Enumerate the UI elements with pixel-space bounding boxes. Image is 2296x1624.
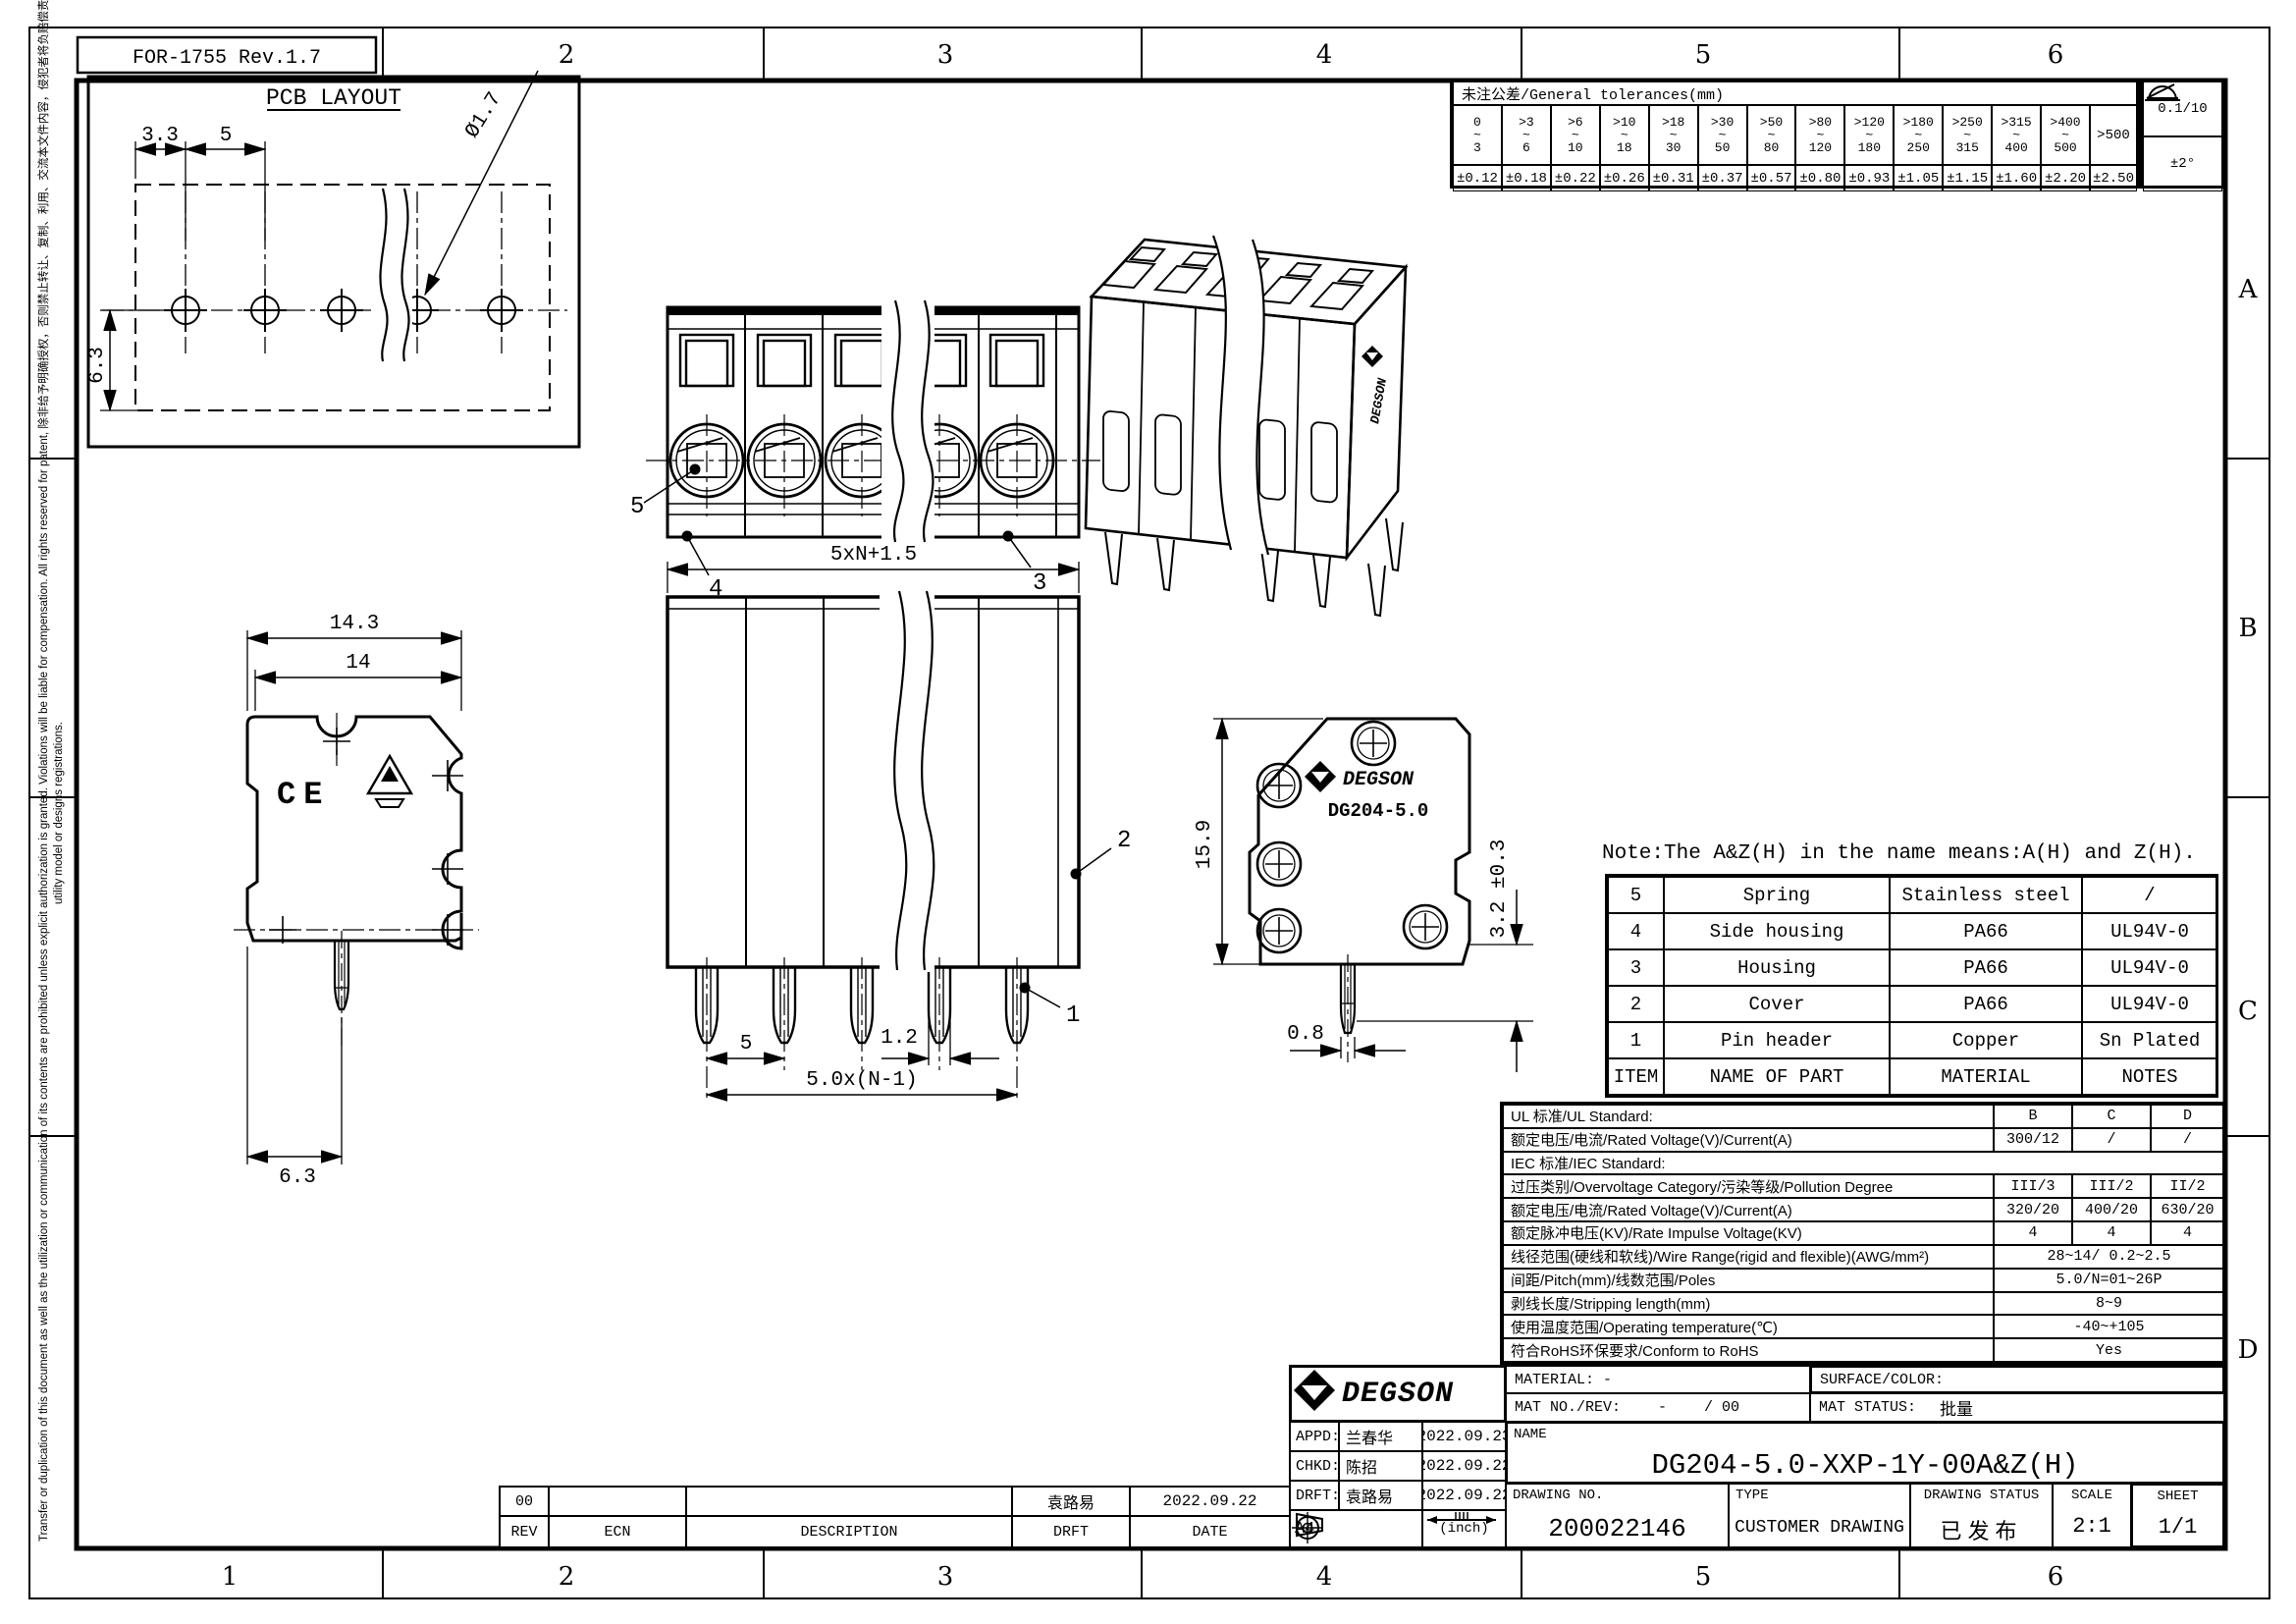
tolerance-range: >400~500: [2041, 105, 2090, 165]
dim-end-pin-length: 3.2 ±0.3: [1488, 839, 1511, 939]
callout-2: 2: [1117, 828, 1131, 854]
zone-bottom-6: 6: [2048, 1562, 2064, 1592]
date-header: DATE: [1131, 1517, 1289, 1546]
part-material: PA66: [1890, 949, 2082, 986]
isometric-view: [1086, 236, 1406, 616]
ecn-value: [550, 1488, 685, 1515]
part-material: PA66: [1890, 913, 2082, 949]
mat-no-value: -: [1658, 1399, 1667, 1416]
tolerance-value: ±1.15: [1943, 165, 1992, 191]
dim-front-span: 5.0x(N-1): [806, 1069, 917, 1092]
part-notes: UL94V-0: [2082, 986, 2217, 1022]
drawing-status-value: 已发布: [1911, 1514, 2052, 1545]
scale-value: 2:1: [2054, 1514, 2130, 1539]
flatness-value: 0.1/10: [2158, 102, 2207, 116]
drft-name: 袁路易: [1340, 1482, 1421, 1509]
part-item: 4: [1608, 913, 1664, 949]
spec-value: 630/20: [2151, 1198, 2224, 1221]
ecn-header: ECN: [550, 1517, 685, 1546]
chkd-label: CHKD:: [1291, 1452, 1338, 1480]
callout-1: 1: [1066, 1002, 1080, 1029]
zone-right-c: C: [2238, 997, 2258, 1026]
drawing-status-label: DRAWING STATUS: [1911, 1488, 2052, 1503]
spec-section-header: IEC 标准/IEC Standard:: [1503, 1152, 2224, 1175]
part-item: 3: [1608, 949, 1664, 986]
tolerance-range: >250~315: [1943, 105, 1992, 165]
tolerance-value: ±1.05: [1894, 165, 1943, 191]
scale-label: SCALE: [2054, 1488, 2130, 1503]
dim-side-body: 14: [346, 652, 370, 675]
rev-value: 00: [501, 1488, 548, 1515]
spec-value: 320/20: [1994, 1198, 2072, 1221]
zone-bottom-4: 4: [1316, 1562, 1333, 1592]
spec-label: UL 标准/UL Standard:: [1503, 1105, 1994, 1128]
tolerance-value: ±0.22: [1551, 165, 1600, 191]
form-reference: FOR-1755 Rev.1.7: [133, 47, 321, 70]
pcb-layout-title: PCB LAYOUT: [266, 85, 401, 111]
drft-label: DRFT:: [1291, 1482, 1338, 1509]
tolerance-table: 未注公差/General tolerances(mm) 0~3 >3~6 >6~…: [1450, 79, 2140, 189]
rev-drft-value: 袁路易: [1013, 1488, 1129, 1515]
tolerance-range: >3~6: [1502, 105, 1551, 165]
zone-right-a: A: [2238, 275, 2259, 304]
part-material: PA66: [1890, 986, 2082, 1022]
iso-brand: DEGSON: [1367, 377, 1390, 425]
description-header: DESCRIPTION: [687, 1517, 1011, 1546]
zone-top-4: 4: [1316, 40, 1333, 70]
dim-end-height: 15.9: [1194, 820, 1216, 869]
spec-value: -40~+105: [1994, 1315, 2224, 1338]
tolerance-value: ±0.18: [1502, 165, 1551, 191]
tolerance-range: >180~250: [1894, 105, 1943, 165]
spec-col-b: B: [1994, 1105, 2072, 1128]
spec-table: UL 标准/UL Standard: B C D 额定电压/电流/Rated V…: [1500, 1102, 2225, 1365]
drft-header: DRFT: [1013, 1517, 1129, 1546]
part-item: 1: [1608, 1022, 1664, 1058]
material-label: MATERIAL: -: [1507, 1367, 1809, 1392]
zone-bottom-3: 3: [937, 1562, 954, 1592]
rev-date-value: 2022.09.22: [1131, 1488, 1289, 1515]
plan-view: [644, 299, 1100, 575]
appd-name: 兰春华: [1340, 1423, 1421, 1450]
zone-top-3: 3: [937, 40, 954, 70]
note-text: Note:The A&Z(H) in the name means:A(H) a…: [1602, 842, 2196, 865]
zone-top-5: 5: [1695, 40, 1712, 70]
type-label: TYPE: [1735, 1488, 1769, 1503]
spec-value: 5.0/N=01~26P: [1994, 1269, 2224, 1292]
part-notes: Sn Plated: [2082, 1022, 2217, 1058]
tolerance-value: ±0.57: [1747, 165, 1796, 191]
part-material: Copper: [1890, 1022, 2082, 1058]
drft-date: 2022.09.22: [1423, 1482, 1505, 1509]
dim-pcb-hole-dia: Ø1.7: [461, 88, 507, 142]
tolerance-range: >18~30: [1649, 105, 1698, 165]
spec-value: 28~14/ 0.2~2.5: [1994, 1245, 2224, 1269]
part-name: Housing: [1664, 949, 1890, 986]
spec-label: 使用温度范围/Operating temperature(℃): [1503, 1315, 1994, 1338]
ce-mark: CE: [277, 777, 330, 813]
parts-header-material: MATERIAL: [1890, 1058, 2082, 1095]
part-name: Pin header: [1664, 1022, 1890, 1058]
front-view: [667, 562, 1111, 1102]
tolerance-value: ±0.12: [1453, 165, 1502, 191]
spec-col-c: C: [2072, 1105, 2151, 1128]
callout-3: 3: [1033, 570, 1046, 597]
appd-label: APPD:: [1291, 1423, 1338, 1450]
part-notes: /: [2082, 877, 2217, 913]
part-item: 2: [1608, 986, 1664, 1022]
drawing-sheet: 2 3 4 5 6 1 2 3 4 5 6 A B C D FOR-1755 R…: [0, 0, 2296, 1624]
spec-value: Yes: [1994, 1338, 2224, 1362]
end-view-brand: DEGSON: [1343, 769, 1415, 791]
spec-label: 额定电压/电流/Rated Voltage(V)/Current(A): [1503, 1128, 1994, 1152]
part-material: Stainless steel: [1890, 877, 2082, 913]
chkd-date: 2022.09.22: [1423, 1452, 1505, 1480]
tolerance-value: ±2.20: [2041, 165, 2090, 191]
description-value: [687, 1488, 1011, 1515]
spec-value: 4: [2151, 1221, 2224, 1245]
type-value: CUSTOMER DRAWING: [1730, 1518, 1909, 1538]
spec-label: 剥线长度/Stripping length(mm): [1503, 1292, 1994, 1316]
zone-top-2: 2: [559, 40, 575, 70]
spec-col-d: D: [2151, 1105, 2224, 1128]
parts-header-item: ITEM: [1608, 1058, 1664, 1095]
dim-pcb-row-offset: 6.3: [86, 347, 109, 384]
angle-tolerance-value: ±2°: [2170, 157, 2195, 171]
spec-value: /: [2072, 1128, 2151, 1152]
angle-tolerance-cell: ±2°: [2143, 136, 2222, 191]
zone-right-b: B: [2238, 614, 2257, 643]
tolerance-value: ±0.31: [1649, 165, 1698, 191]
disclaimer-line-2: utility model or designs registrations.: [53, 518, 65, 1108]
sheet-value: 1/1: [2133, 1515, 2222, 1540]
tolerance-range: >30~50: [1698, 105, 1747, 165]
spec-value: 4: [2072, 1221, 2151, 1245]
tolerance-range: >80~120: [1795, 105, 1844, 165]
dim-front-width: 5xN+1.5: [830, 544, 917, 567]
drawing-no-value: 200022146: [1507, 1514, 1728, 1543]
spec-value: 400/20: [2072, 1198, 2151, 1221]
zone-bottom-5: 5: [1695, 1562, 1712, 1592]
dim-side-overall: 14.3: [330, 613, 379, 635]
tolerance-value: ±0.37: [1698, 165, 1747, 191]
tolerance-range: >6~10: [1551, 105, 1600, 165]
disclaimer-line-1: Transfer or duplication of this document…: [35, 88, 51, 1542]
dim-pcb-pitch-a: 3.3: [141, 125, 179, 147]
dim-pcb-pitch-b: 5: [220, 125, 233, 147]
scale-ruler-icon: [1423, 1511, 1500, 1525]
tolerance-title: 未注公差/General tolerances(mm): [1453, 81, 2137, 105]
tolerance-range: 0~3: [1453, 105, 1502, 165]
tolerance-value: ±0.26: [1600, 165, 1649, 191]
spec-value: III/2: [2072, 1174, 2151, 1198]
side-view: [234, 630, 479, 1164]
tolerance-symbols: 0.1/10 ±2°: [2140, 79, 2225, 189]
surface-label: SURFACE/COLOR:: [1812, 1368, 2222, 1391]
part-notes: UL94V-0: [2082, 949, 2217, 986]
name-label: NAME: [1514, 1427, 1547, 1442]
parts-header-name: NAME OF PART: [1664, 1058, 1890, 1095]
spec-value: 4: [1994, 1221, 2072, 1245]
zone-bottom-1: 1: [222, 1562, 239, 1592]
tolerance-value-over500: ±2.50: [2090, 165, 2137, 191]
spec-label: 额定电压/电流/Rated Voltage(V)/Current(A): [1503, 1198, 1994, 1221]
rev-header: REV: [501, 1517, 548, 1546]
spec-label: 额定脉冲电压(KV)/Rate Impulse Voltage(KV): [1503, 1221, 1994, 1245]
dim-front-pin-width: 1.2: [881, 1027, 918, 1050]
tolerance-value: ±1.60: [1992, 165, 2041, 191]
parts-header-notes: NOTES: [2082, 1058, 2217, 1095]
mat-no-label: MAT NO./REV:: [1515, 1399, 1621, 1416]
tolerance-range: >315~400: [1992, 105, 2041, 165]
mat-status-value: 批量: [1940, 1395, 1973, 1421]
spec-value: II/2: [2151, 1174, 2224, 1198]
zone-bottom-2: 2: [559, 1562, 575, 1592]
spec-label: 线径范围(硬线和软线)/Wire Range(rigid and flexibl…: [1503, 1245, 1994, 1269]
dim-end-pin-width: 0.8: [1287, 1023, 1324, 1046]
mat-rev-value: / 00: [1704, 1399, 1739, 1416]
spec-label: 间距/Pitch(mm)/线数范围/Poles: [1503, 1269, 1994, 1292]
part-notes: UL94V-0: [2082, 913, 2217, 949]
appd-date: 2022.09.23: [1423, 1423, 1505, 1450]
part-number: DG204-5.0-XXP-1Y-00A&Z(H): [1508, 1449, 2222, 1482]
spec-value: 8~9: [1994, 1292, 2224, 1316]
spec-value: III/3: [1994, 1174, 2072, 1198]
degson-logo-icon: [1292, 1368, 1337, 1413]
zone-top-6: 6: [2048, 40, 2064, 70]
tolerance-value: ±0.93: [1844, 165, 1894, 191]
tolerance-range: >10~18: [1600, 105, 1649, 165]
parts-table: 5 Spring Stainless steel / 4 Side housin…: [1605, 874, 2218, 1098]
zone-right-d: D: [2238, 1335, 2259, 1365]
spec-label: 过压类别/Overvoltage Category/污染等级/Pollution…: [1503, 1174, 1994, 1198]
part-item: 5: [1608, 877, 1664, 913]
part-name: Cover: [1664, 986, 1890, 1022]
tolerance-range: >50~80: [1747, 105, 1796, 165]
drawing-no-label: DRAWING NO.: [1513, 1488, 1603, 1503]
tolerance-range-over500: >500: [2090, 105, 2137, 165]
tolerance-value: ±0.80: [1795, 165, 1844, 191]
cone-symbol-icon: [1291, 1511, 1326, 1539]
chkd-name: 陈招: [1340, 1452, 1421, 1480]
callout-5: 5: [630, 494, 644, 520]
mat-status-label: MAT STATUS:: [1819, 1399, 1916, 1416]
sheet-label: SHEET: [2133, 1489, 2222, 1504]
end-view-model: DG204-5.0: [1328, 800, 1429, 822]
part-name: Side housing: [1664, 913, 1890, 949]
spec-value: 300/12: [1994, 1128, 2072, 1152]
callout-4: 4: [709, 576, 722, 603]
part-name: Spring: [1664, 877, 1890, 913]
tolerance-range: >120~180: [1844, 105, 1894, 165]
spec-value: /: [2151, 1128, 2224, 1152]
dim-side-pin-offset: 6.3: [279, 1166, 316, 1189]
spec-label: 符合RoHS环保要求/Conform to RoHS: [1503, 1338, 1994, 1362]
dim-front-pitch: 5: [740, 1033, 753, 1056]
degson-logo-text: DEGSON: [1342, 1378, 1454, 1411]
